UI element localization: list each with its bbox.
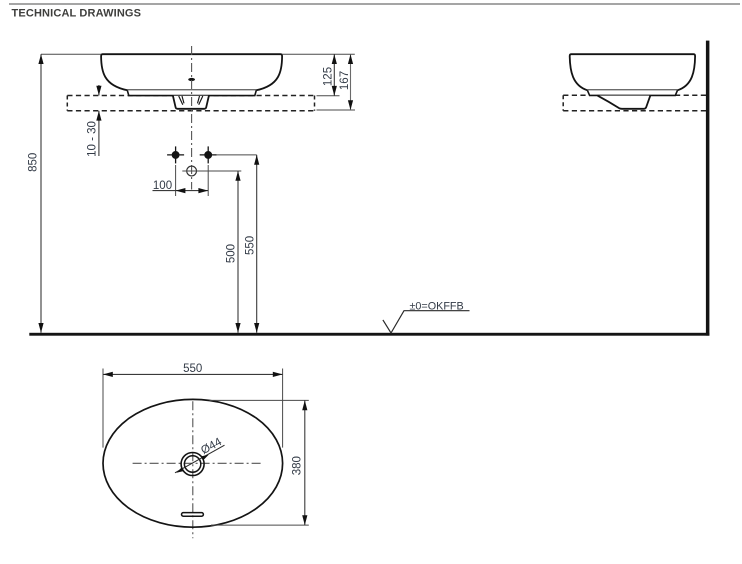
svg-text:Ø44: Ø44 bbox=[199, 436, 224, 457]
svg-text:167: 167 bbox=[339, 71, 351, 90]
svg-text:380: 380 bbox=[292, 456, 304, 475]
svg-text:550: 550 bbox=[244, 236, 256, 255]
svg-text:±0=OKFFB: ±0=OKFFB bbox=[410, 300, 464, 312]
svg-text:125: 125 bbox=[323, 67, 335, 86]
svg-text:500: 500 bbox=[226, 244, 238, 263]
svg-text:850: 850 bbox=[28, 153, 40, 172]
svg-text:TECHNICAL DRAWINGS: TECHNICAL DRAWINGS bbox=[12, 8, 142, 20]
svg-text:10 - 30: 10 - 30 bbox=[87, 121, 99, 157]
svg-text:550: 550 bbox=[183, 363, 202, 375]
svg-text:100: 100 bbox=[153, 180, 172, 192]
